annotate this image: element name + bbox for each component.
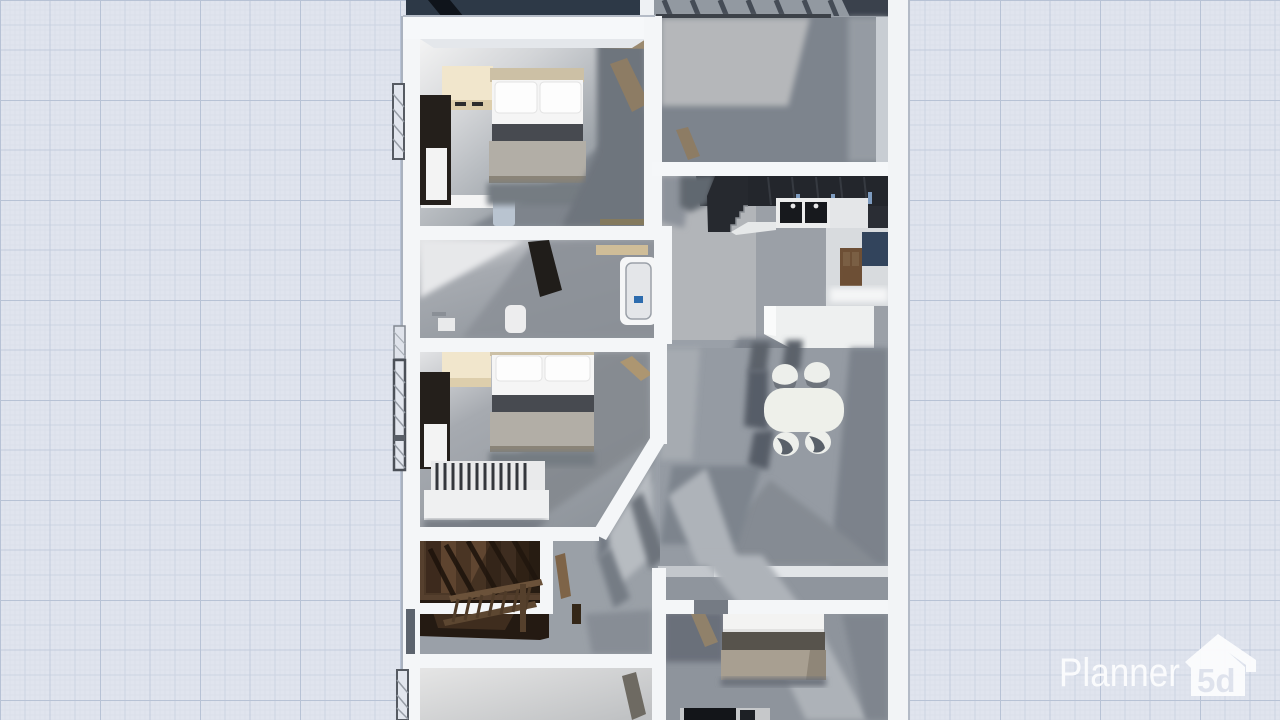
svg-text:5d: 5d (1197, 662, 1236, 699)
svg-text:Planner: Planner (1059, 651, 1180, 695)
